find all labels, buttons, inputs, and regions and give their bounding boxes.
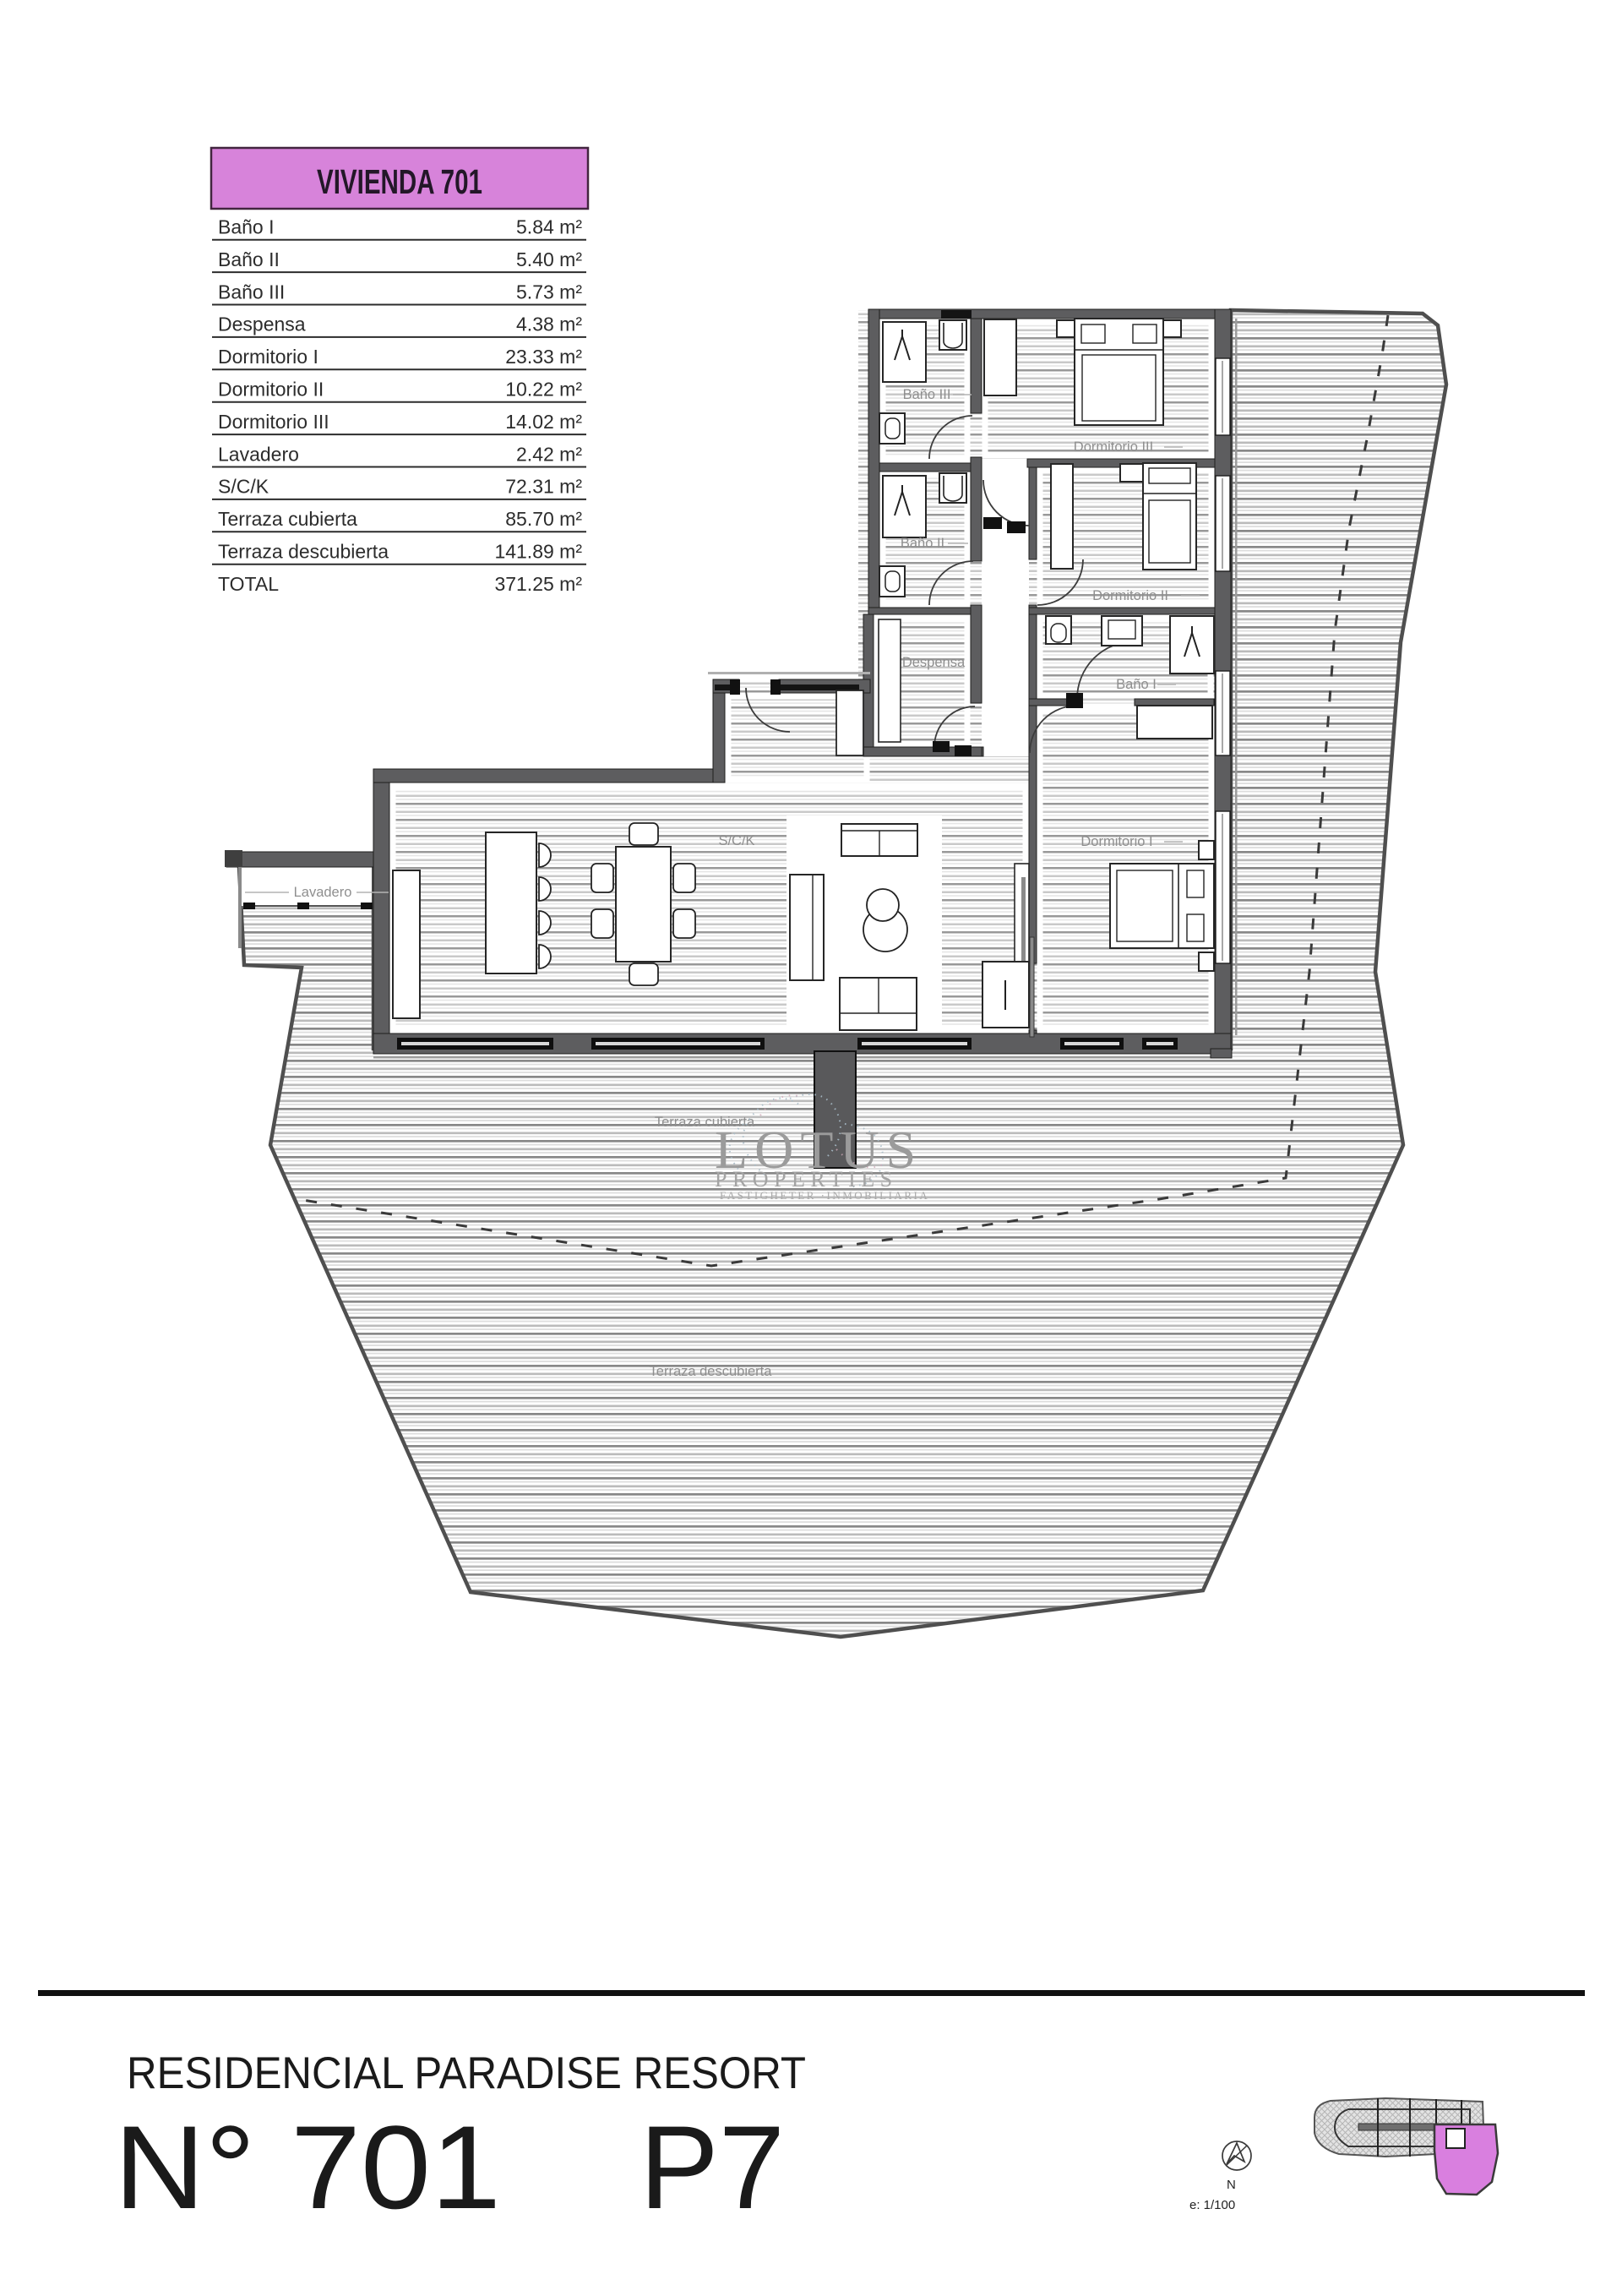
- svg-text:Dormitorio II: Dormitorio II: [1092, 588, 1168, 603]
- svg-text:Dormitorio I: Dormitorio I: [1080, 834, 1152, 849]
- svg-text:Baño I: Baño I: [218, 216, 275, 238]
- svg-text:14.02 m²: 14.02 m²: [505, 411, 582, 433]
- svg-text:141.89 m²: 141.89 m²: [494, 541, 582, 563]
- svg-text:VIVIENDA 701: VIVIENDA 701: [317, 162, 482, 201]
- svg-text:Terraza descubierta: Terraza descubierta: [650, 1364, 773, 1379]
- svg-text:e: 1/100: e: 1/100: [1189, 2198, 1235, 2212]
- svg-text:N: N: [1227, 2178, 1236, 2192]
- svg-text:2.42 m²: 2.42 m²: [516, 443, 582, 465]
- svg-text:Baño III: Baño III: [903, 387, 951, 402]
- svg-text:P7: P7: [640, 2101, 785, 2233]
- svg-text:85.70 m²: 85.70 m²: [505, 508, 582, 530]
- svg-text:FASTIGHETER ·INMOBILIARIA: FASTIGHETER ·INMOBILIARIA: [720, 1189, 929, 1202]
- svg-text:Lavadero: Lavadero: [294, 885, 352, 900]
- svg-text:N° 701: N° 701: [114, 2101, 501, 2233]
- svg-text:Despensa: Despensa: [902, 655, 966, 670]
- svg-text:5.40 m²: 5.40 m²: [516, 248, 582, 270]
- svg-text:Terraza cubierta: Terraza cubierta: [218, 508, 357, 530]
- svg-text:Despensa: Despensa: [218, 314, 306, 335]
- svg-text:371.25 m²: 371.25 m²: [494, 573, 582, 595]
- svg-text:72.31 m²: 72.31 m²: [505, 476, 582, 498]
- svg-text:5.84 m²: 5.84 m²: [516, 216, 582, 238]
- svg-text:Dormitorio III: Dormitorio III: [1074, 439, 1153, 455]
- svg-text:Dormitorio I: Dormitorio I: [218, 346, 318, 368]
- svg-text:S/C/K: S/C/K: [718, 833, 754, 848]
- svg-text:Baño II: Baño II: [218, 248, 280, 270]
- svg-text:Baño III: Baño III: [218, 281, 285, 303]
- svg-text:23.33 m²: 23.33 m²: [505, 346, 582, 368]
- svg-text:Lavadero: Lavadero: [218, 443, 299, 465]
- svg-text:10.22 m²: 10.22 m²: [505, 379, 582, 401]
- svg-text:RESIDENCIAL PARADISE RESORT: RESIDENCIAL PARADISE RESORT: [127, 2048, 806, 2098]
- svg-text:S/C/K: S/C/K: [218, 476, 269, 498]
- svg-text:Dormitorio II: Dormitorio II: [218, 379, 324, 401]
- svg-text:TOTAL: TOTAL: [218, 573, 279, 595]
- svg-text:Terraza descubierta: Terraza descubierta: [218, 541, 389, 563]
- svg-text:Baño II: Baño II: [901, 536, 944, 551]
- svg-text:Baño I: Baño I: [1116, 677, 1157, 692]
- svg-text:5.73 m²: 5.73 m²: [516, 281, 582, 303]
- svg-text:4.38 m²: 4.38 m²: [516, 314, 582, 335]
- svg-text:Dormitorio III: Dormitorio III: [218, 411, 329, 433]
- svg-text:PROPERTIES: PROPERTIES: [715, 1167, 898, 1192]
